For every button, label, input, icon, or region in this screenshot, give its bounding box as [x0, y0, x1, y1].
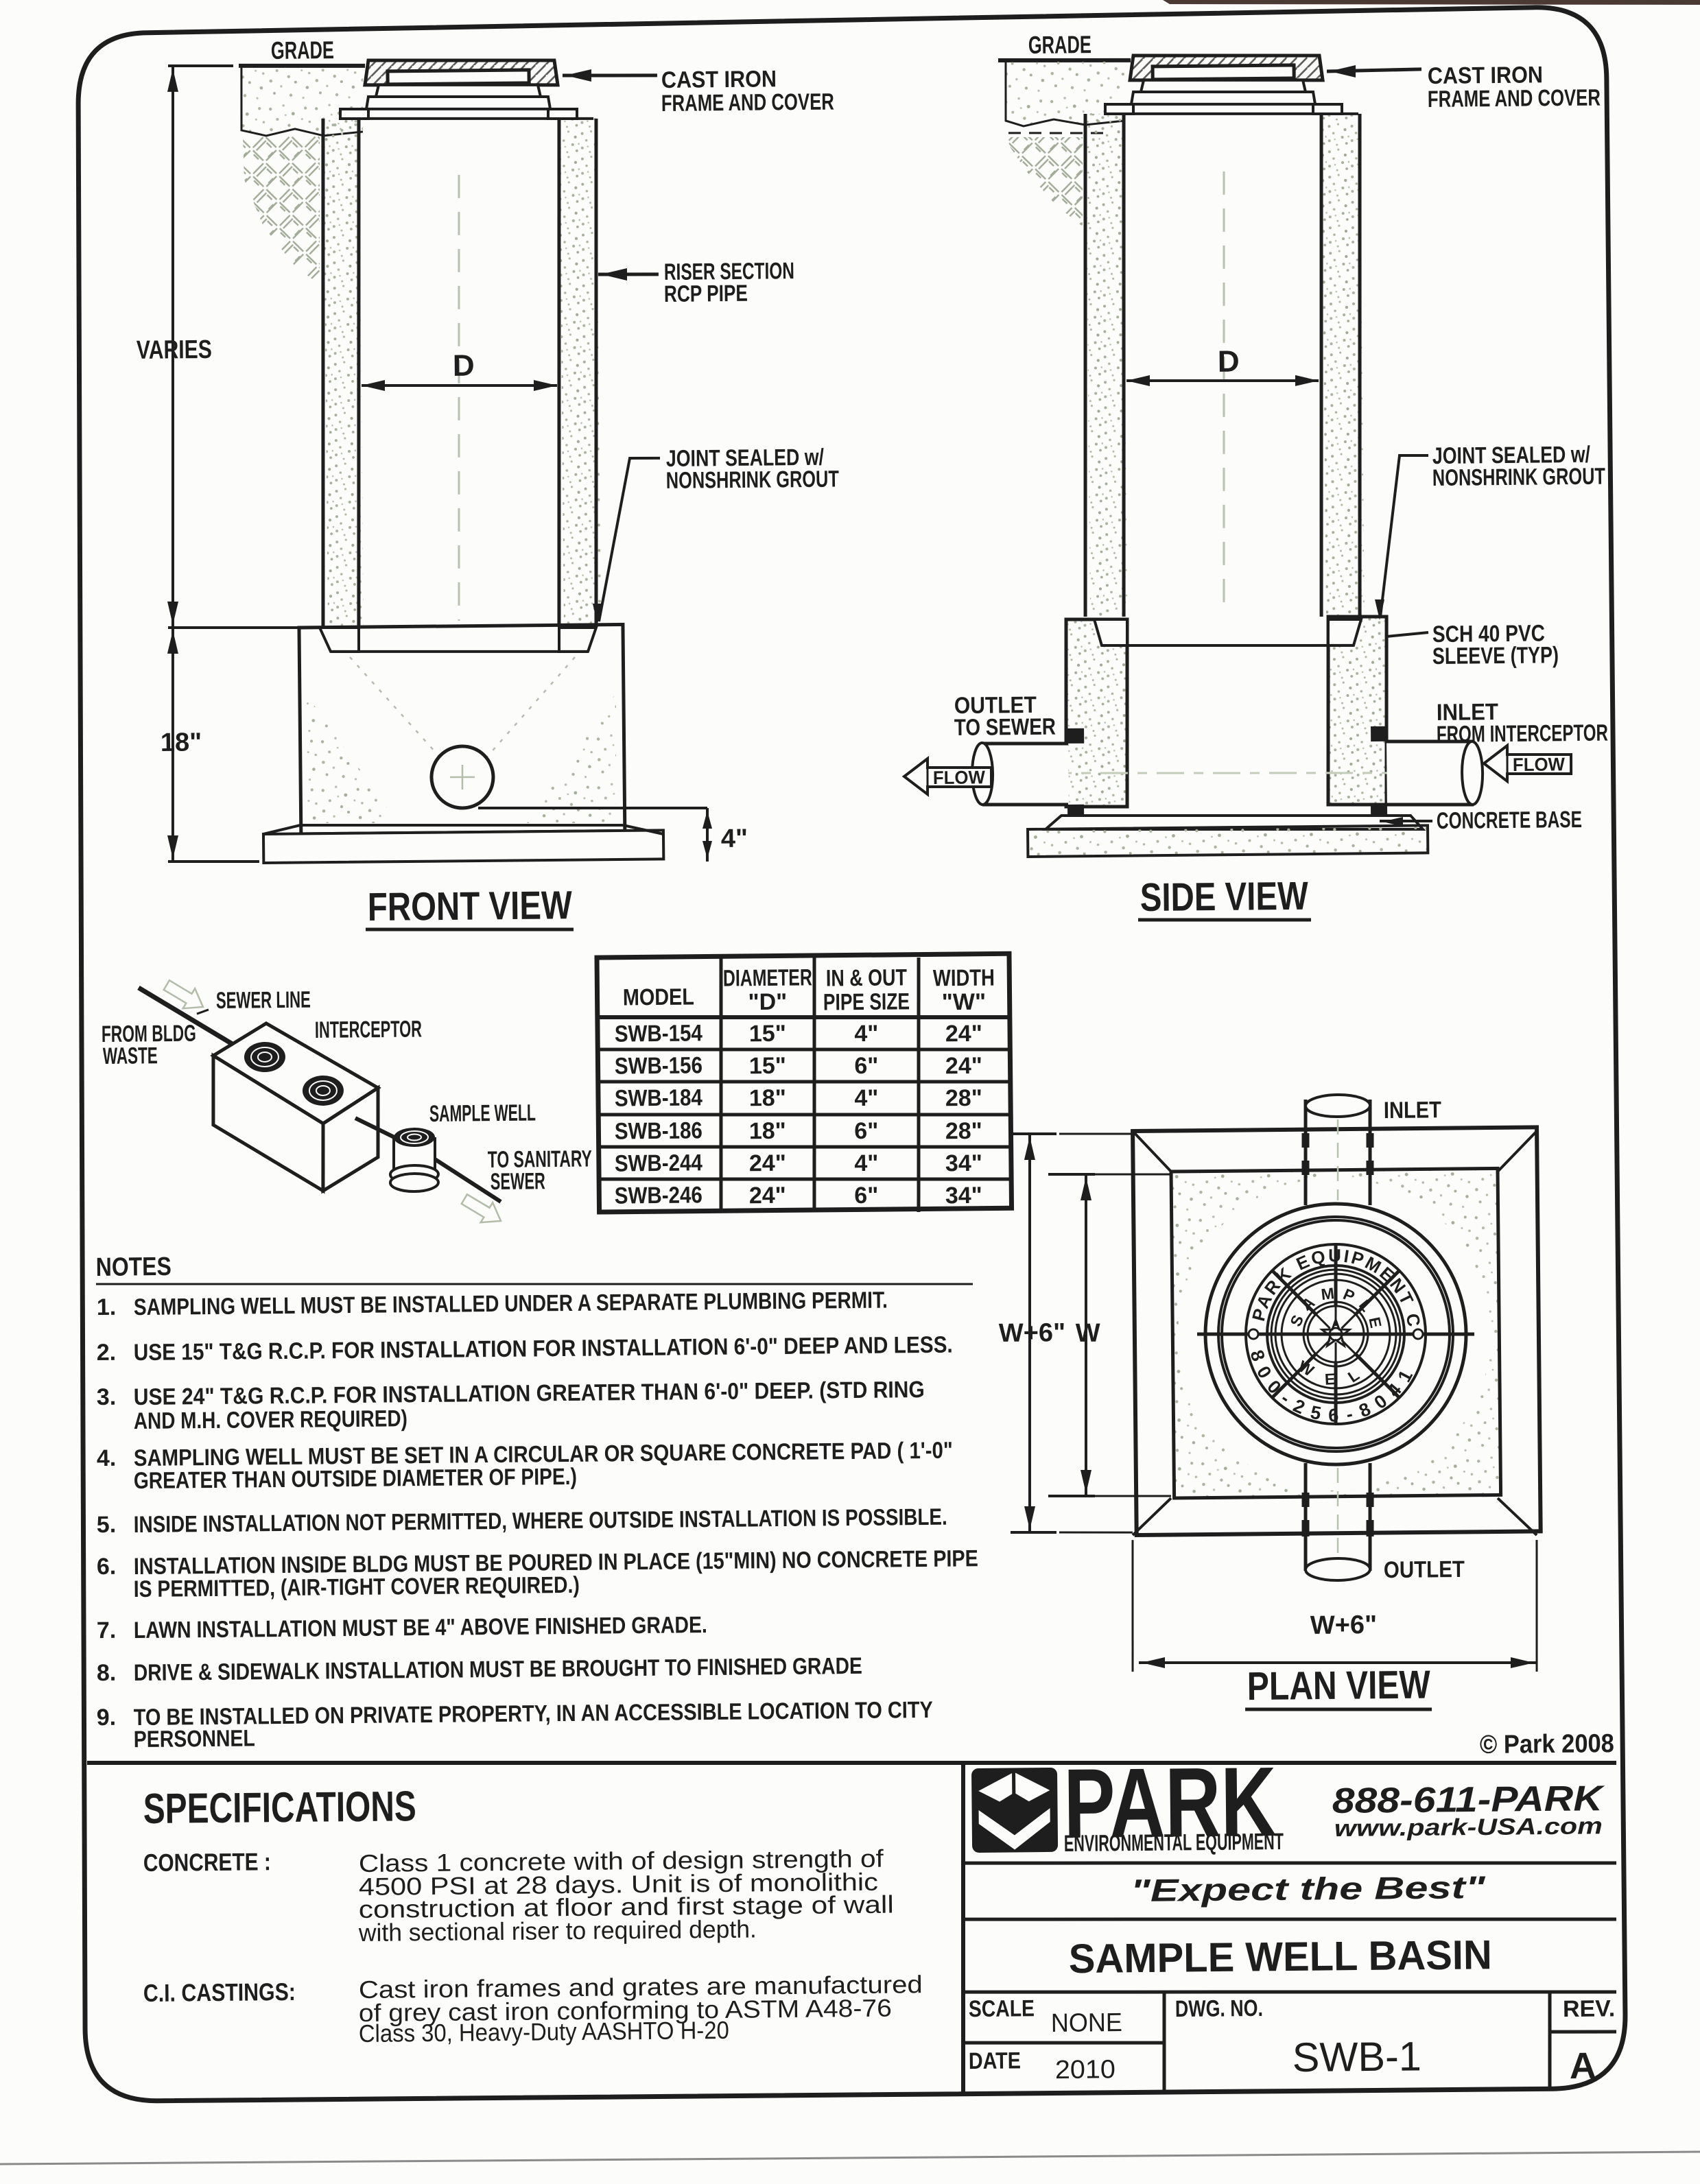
svg-text:SWB-246: SWB-246	[615, 1182, 703, 1209]
svg-text:18": 18"	[161, 728, 202, 757]
svg-text:PERSONNEL: PERSONNEL	[134, 1725, 255, 1753]
svg-text:SIDE VIEW: SIDE VIEW	[1140, 874, 1308, 920]
svg-text:C.I. CASTINGS:: C.I. CASTINGS:	[143, 1978, 296, 2007]
svg-text:2.: 2.	[97, 1340, 117, 1366]
svg-text:FRONT VIEW: FRONT VIEW	[367, 883, 572, 929]
svg-text:6": 6"	[854, 1118, 878, 1144]
svg-text:GREATER THAN OUTSIDE DIAMETER: GREATER THAN OUTSIDE DIAMETER OF PIPE.)	[134, 1464, 577, 1494]
svg-text:6": 6"	[854, 1183, 878, 1209]
svg-text:4": 4"	[854, 1150, 878, 1176]
svg-text:RCP PIPE: RCP PIPE	[664, 281, 748, 307]
svg-text:VARIES: VARIES	[137, 335, 212, 365]
svg-text:OUTLET: OUTLET	[1384, 1556, 1465, 1583]
svg-text:GRADE: GRADE	[1028, 30, 1091, 59]
svg-text:CONCRETE BASE: CONCRETE BASE	[1437, 807, 1582, 834]
svg-text:7.: 7.	[97, 1617, 117, 1643]
svg-text:IN & OUT: IN & OUT	[826, 964, 908, 991]
svg-text:15": 15"	[749, 1021, 786, 1047]
svg-text:34": 34"	[945, 1150, 982, 1177]
svg-text:PIPE SIZE: PIPE SIZE	[823, 988, 910, 1015]
svg-text:W+6": W+6"	[999, 1318, 1066, 1348]
svg-text:SWB-1: SWB-1	[1292, 2033, 1422, 2080]
svg-text:"W": "W"	[942, 989, 987, 1016]
svg-text:SWB-186: SWB-186	[615, 1117, 703, 1144]
svg-text:with sectional riser to requir: with sectional riser to required depth.	[358, 1914, 757, 1947]
svg-text:W+6": W+6"	[1310, 1611, 1378, 1640]
svg-text:AND M.H. COVER REQUIRED): AND M.H. COVER REQUIRED)	[134, 1405, 408, 1434]
svg-text:INTERCEPTOR: INTERCEPTOR	[315, 1016, 422, 1043]
svg-text:INSIDE INSTALLATION NOT PERMIT: INSIDE INSTALLATION NOT PERMITTED, WHERE…	[134, 1504, 947, 1538]
svg-text:NOTES: NOTES	[96, 1253, 172, 1282]
svg-text:24": 24"	[945, 1053, 982, 1080]
svg-text:4": 4"	[721, 824, 748, 853]
svg-text:GRADE: GRADE	[271, 36, 334, 64]
svg-text:D: D	[453, 349, 475, 383]
svg-text:5.: 5.	[97, 1512, 117, 1538]
svg-text:SWB-156: SWB-156	[615, 1052, 703, 1079]
svg-text:3.: 3.	[97, 1384, 117, 1410]
svg-text:W: W	[1076, 1319, 1100, 1348]
svg-text:USE 15" T&G R.C.P. FOR INSTALL: USE 15" T&G R.C.P. FOR INSTALLATION FOR …	[134, 1332, 953, 1366]
svg-text:4": 4"	[854, 1021, 878, 1047]
svg-text:SWB-244: SWB-244	[615, 1150, 703, 1176]
svg-text:4.: 4.	[97, 1445, 117, 1471]
svg-text:NONSHRINK GROUT: NONSHRINK GROUT	[666, 466, 840, 494]
svg-text:SLEEVE (TYP): SLEEVE (TYP)	[1432, 642, 1559, 669]
svg-text:REV.: REV.	[1563, 1995, 1616, 2022]
svg-text:FLOW: FLOW	[933, 767, 986, 788]
svg-text:CONCRETE :: CONCRETE :	[143, 1847, 271, 1877]
svg-text:18": 18"	[749, 1085, 786, 1112]
svg-text:TO SEWER: TO SEWER	[954, 714, 1056, 741]
svg-text:WIDTH: WIDTH	[933, 965, 995, 992]
svg-text:SWB-184: SWB-184	[615, 1084, 703, 1111]
svg-text:9.: 9.	[97, 1705, 117, 1731]
svg-text:34": 34"	[945, 1183, 982, 1209]
svg-text:2010: 2010	[1055, 2055, 1115, 2085]
svg-text:MODEL: MODEL	[623, 984, 694, 1010]
svg-text:DATE: DATE	[969, 2047, 1021, 2074]
svg-text:SWB-154: SWB-154	[615, 1020, 703, 1047]
svg-text:SPECIFICATIONS: SPECIFICATIONS	[143, 1783, 416, 1833]
svg-text:"D": "D"	[748, 989, 787, 1016]
svg-text:Class 30, Heavy-Duty AASHTO H-: Class 30, Heavy-Duty AASHTO H-20	[359, 2016, 729, 2047]
svg-text:PLAN VIEW: PLAN VIEW	[1247, 1663, 1431, 1709]
svg-text:SAMPLING WELL MUST BE INSTALLE: SAMPLING WELL MUST BE INSTALLED UNDER A …	[134, 1287, 888, 1320]
svg-text:D: D	[1218, 345, 1240, 379]
svg-text:SAMPLE WELL BASIN: SAMPLE WELL BASIN	[1069, 1932, 1493, 1982]
svg-text:www.park-USA.com: www.park-USA.com	[1334, 1813, 1603, 1842]
svg-text:DRIVE & SIDEWALK INSTALLATION: DRIVE & SIDEWALK INSTALLATION MUST BE BR…	[134, 1653, 862, 1686]
svg-text:FROM INTERCEPTOR: FROM INTERCEPTOR	[1437, 720, 1608, 748]
svg-text:SEWER LINE: SEWER LINE	[216, 987, 311, 1014]
svg-text:SEWER: SEWER	[491, 1168, 545, 1195]
svg-text:6": 6"	[854, 1053, 878, 1079]
svg-text:6.: 6.	[97, 1554, 117, 1580]
svg-text:24": 24"	[945, 1021, 982, 1047]
svg-text:28": 28"	[945, 1118, 982, 1145]
svg-text:24": 24"	[749, 1150, 786, 1177]
svg-text:ENVIRONMENTAL EQUIPMENT: ENVIRONMENTAL EQUIPMENT	[1064, 1829, 1284, 1857]
svg-text:SAMPLE WELL: SAMPLE WELL	[429, 1100, 536, 1126]
svg-text:IS PERMITTED, (AIR-TIGHT COVER: IS PERMITTED, (AIR-TIGHT COVER REQUIRED.…	[134, 1572, 580, 1602]
svg-text:DWG. NO.: DWG. NO.	[1175, 1995, 1263, 2022]
svg-text:USE 24" T&G R.C.P. FOR INSTALL: USE 24" T&G R.C.P. FOR INSTALLATION GREA…	[134, 1377, 925, 1410]
svg-text:18": 18"	[749, 1118, 786, 1145]
svg-text:"Expect the Best": "Expect the Best"	[1131, 1869, 1487, 1908]
svg-text:NONE: NONE	[1051, 2008, 1122, 2038]
svg-text:15": 15"	[749, 1053, 786, 1080]
svg-text:FRAME AND COVER: FRAME AND COVER	[661, 89, 834, 117]
svg-text:© Park 2008: © Park 2008	[1480, 1729, 1614, 1759]
svg-text:A: A	[1570, 2045, 1597, 2087]
svg-text:LAWN INSTALLATION MUST BE 4" A: LAWN INSTALLATION MUST BE 4" ABOVE FINIS…	[134, 1612, 707, 1643]
svg-text:8.: 8.	[97, 1660, 117, 1686]
svg-text:INLET: INLET	[1384, 1097, 1442, 1124]
svg-text:1.: 1.	[97, 1294, 117, 1320]
svg-text:SCALE: SCALE	[969, 1995, 1035, 2022]
svg-text:WASTE: WASTE	[103, 1043, 158, 1069]
svg-text:28": 28"	[945, 1085, 982, 1112]
svg-text:PARK EQUIPMENT CO: PARK EQUIPMENT CO	[0, 0, 1425, 1344]
svg-text:FLOW: FLOW	[1513, 754, 1566, 775]
svg-text:4": 4"	[854, 1085, 878, 1111]
svg-text:FRAME AND COVER: FRAME AND COVER	[1428, 85, 1601, 112]
svg-text:NONSHRINK GROUT: NONSHRINK GROUT	[1432, 464, 1606, 491]
svg-text:24": 24"	[749, 1183, 786, 1209]
svg-text:DIAMETER: DIAMETER	[723, 964, 812, 991]
